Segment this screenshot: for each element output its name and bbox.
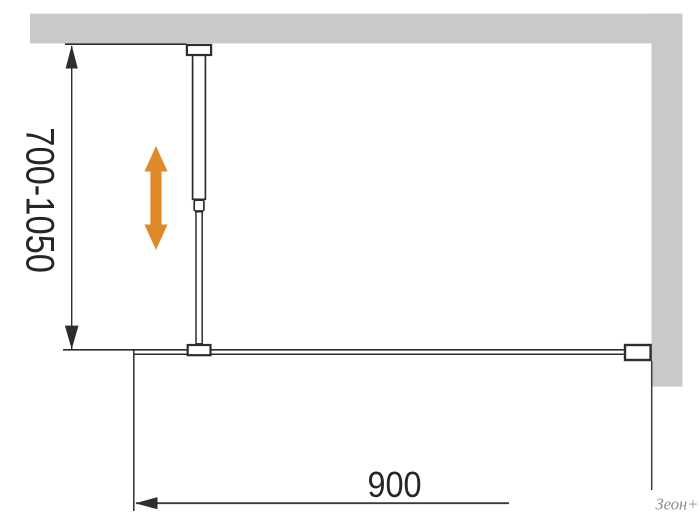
svg-text:900: 900 — [367, 466, 421, 506]
svg-text:700-1050: 700-1050 — [18, 127, 63, 273]
svg-text:Зеон+: Зеон+ — [656, 495, 699, 514]
